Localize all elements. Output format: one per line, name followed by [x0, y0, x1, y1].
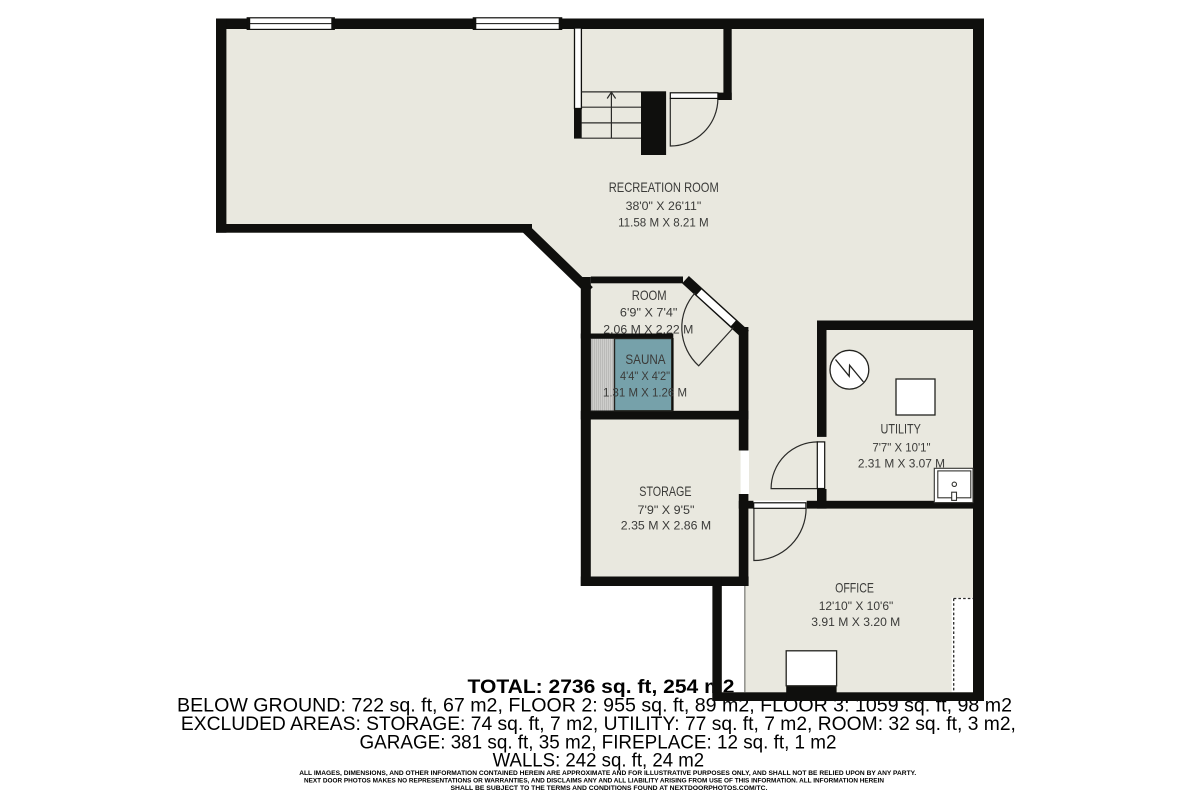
svg-text:SAUNA: SAUNA — [625, 351, 666, 367]
svg-text:7'7" X 10'1": 7'7" X 10'1" — [872, 441, 930, 455]
svg-text:RECREATION ROOM: RECREATION ROOM — [609, 180, 719, 195]
svg-text:ROOM: ROOM — [632, 287, 667, 303]
svg-text:7'9" X 9'5": 7'9" X 9'5" — [638, 503, 695, 517]
svg-text:SHALL BE SUBJECT TO THE TERMS: SHALL BE SUBJECT TO THE TERMS AND CONDIT… — [451, 785, 768, 792]
svg-text:OFFICE: OFFICE — [835, 580, 874, 596]
svg-text:WALLS: 242 sq. ft, 24 m2: WALLS: 242 sq. ft, 24 m2 — [493, 751, 705, 772]
svg-text:1.31 M X 1.26 M: 1.31 M X 1.26 M — [603, 386, 687, 400]
svg-text:4'4" X 4'2": 4'4" X 4'2" — [620, 369, 670, 383]
svg-text:NEXT DOOR PHOTOS MAKES NO REPR: NEXT DOOR PHOTOS MAKES NO REPRESENTATION… — [304, 778, 884, 785]
svg-text:6'9" X 7'4": 6'9" X 7'4" — [620, 306, 678, 320]
svg-text:2.06 M X 2.22 M: 2.06 M X 2.22 M — [603, 323, 693, 337]
svg-text:STORAGE: STORAGE — [639, 483, 691, 499]
svg-text:38'0" X 26'11": 38'0" X 26'11" — [626, 199, 702, 213]
svg-text:2.35 M X 2.86 M: 2.35 M X 2.86 M — [621, 519, 711, 533]
svg-text:12'10" X 10'6": 12'10" X 10'6" — [819, 599, 894, 613]
svg-text:UTILITY: UTILITY — [881, 421, 922, 437]
svg-text:2.31 M X 3.07 M: 2.31 M X 3.07 M — [858, 457, 945, 471]
svg-text:ALL IMAGES, DIMENSIONS, AND OT: ALL IMAGES, DIMENSIONS, AND OTHER INFORM… — [299, 770, 916, 777]
svg-text:11.58 M X 8.21 M: 11.58 M X 8.21 M — [618, 215, 709, 229]
svg-text:3.91 M X 3.20 M: 3.91 M X 3.20 M — [811, 615, 900, 629]
